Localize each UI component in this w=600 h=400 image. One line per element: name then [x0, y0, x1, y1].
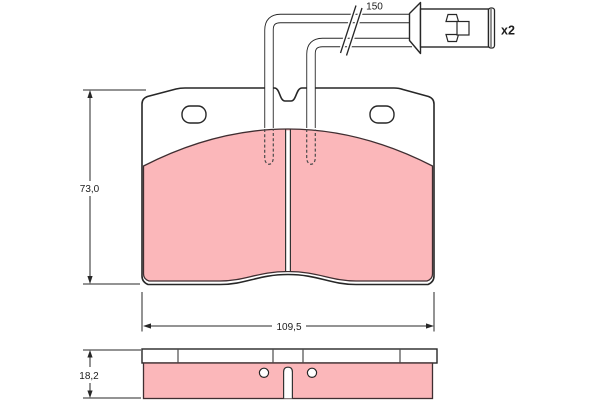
thickness-label: 18,2 [79, 371, 99, 382]
height-label: 73,0 [80, 184, 100, 195]
width-label: 109,5 [276, 322, 301, 333]
wire-break-marks [341, 6, 363, 56]
connector-clip-top [446, 15, 459, 22]
backplate-edge-strip [142, 349, 437, 363]
wire-length-label: 150 [366, 2, 383, 13]
dimension-height: 73,0 [80, 90, 146, 284]
drawing-canvas: 150 x2 73,0 109,5 [0, 0, 600, 400]
quantity-label: x2 [501, 24, 515, 38]
mounting-hole-right [370, 106, 394, 123]
center-slot [286, 130, 291, 272]
brake-pad-technical-drawing: 150 x2 73,0 109,5 [0, 0, 600, 400]
dimension-width: 109,5 [142, 292, 434, 333]
dimension-thickness: 18,2 [79, 350, 141, 398]
sensor-hole-right [307, 368, 316, 377]
brake-pad-front-view [142, 88, 434, 285]
connector-latch-window [457, 22, 469, 36]
sensor-hole-left [259, 368, 268, 377]
mounting-hole-left [182, 106, 206, 123]
connector: x2 [410, 3, 515, 54]
brake-pad-bottom-view [142, 349, 437, 399]
bottom-view-slot-fill [284, 367, 293, 398]
